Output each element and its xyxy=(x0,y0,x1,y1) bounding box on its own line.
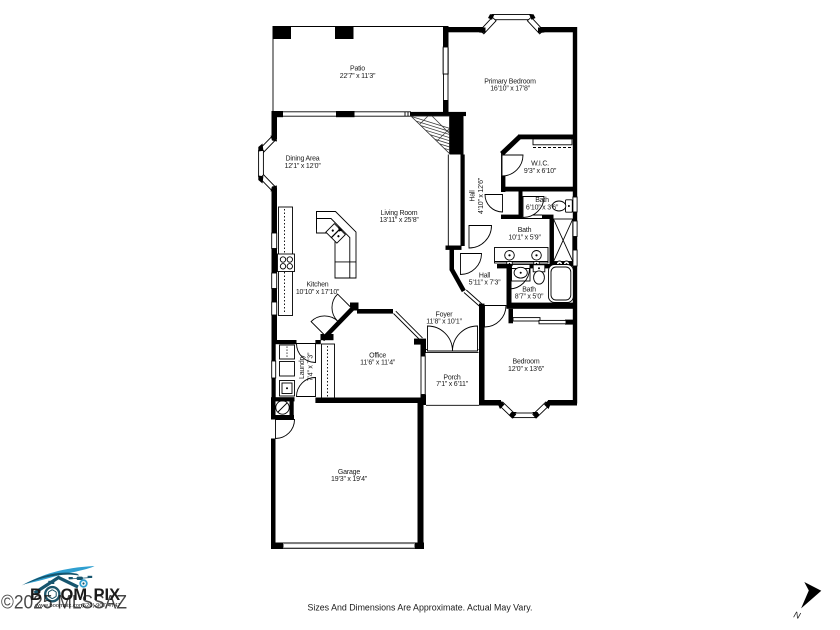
svg-text:12’1” x 12’0”: 12’1” x 12’0” xyxy=(285,163,322,170)
svg-text:Foyer: Foyer xyxy=(436,312,454,319)
svg-text:Dining Area: Dining Area xyxy=(286,156,320,163)
svg-text:Primary Bedroom: Primary Bedroom xyxy=(484,78,536,85)
svg-text:22’7” x 11’3”: 22’7” x 11’3” xyxy=(340,73,376,80)
svg-text:7’4” x 7’3”: 7’4” x 7’3” xyxy=(308,352,315,381)
svg-text:Sizes And Dimensions Are Appro: Sizes And Dimensions Are Approximate. Ac… xyxy=(308,603,533,613)
svg-text:10’1” x 5’9”: 10’1” x 5’9” xyxy=(508,234,541,241)
svg-text:5’11” x 7’3”: 5’11” x 7’3” xyxy=(469,279,502,286)
svg-text:Office: Office xyxy=(369,352,386,359)
svg-text:11’6” x 11’4”: 11’6” x 11’4” xyxy=(360,359,396,366)
svg-text:13’11” x 25’8”: 13’11” x 25’8” xyxy=(379,217,419,224)
svg-text:Bedroom: Bedroom xyxy=(512,359,539,366)
svg-text:Living Room: Living Room xyxy=(381,210,418,217)
svg-text:10’10” x 17’10”: 10’10” x 17’10” xyxy=(296,289,340,296)
svg-text:9’3” x 6’10”: 9’3” x 6’10” xyxy=(524,168,557,175)
svg-text:Bath: Bath xyxy=(535,197,549,204)
svg-text:Patio: Patio xyxy=(350,66,365,73)
svg-text:16’10” x 17’8”: 16’10” x 17’8” xyxy=(490,86,530,93)
svg-text:11’8” x 10’1”: 11’8” x 10’1” xyxy=(426,319,462,326)
svg-text:7’1” x 6’11”: 7’1” x 6’11” xyxy=(436,381,469,388)
svg-text:12’0” x 13’6”: 12’0” x 13’6” xyxy=(508,366,545,373)
svg-text:Laundry: Laundry xyxy=(299,354,306,379)
svg-text:6’10” x 3’6”: 6’10” x 3’6” xyxy=(526,204,559,211)
svg-text:19’3” x 19’4”: 19’3” x 19’4” xyxy=(331,476,368,483)
svg-text:W.I.C.: W.I.C. xyxy=(531,161,549,168)
svg-text:Bath: Bath xyxy=(518,227,532,234)
svg-text:©2025 MLSSAZ: ©2025 MLSSAZ xyxy=(1,593,127,614)
svg-text:Kitchen: Kitchen xyxy=(307,282,329,289)
svg-text:Hall: Hall xyxy=(479,272,491,279)
svg-text:4’10” x 12’6”: 4’10” x 12’6” xyxy=(478,177,485,214)
svg-text:Hall: Hall xyxy=(470,190,477,202)
svg-text:8’7” x 5’0”: 8’7” x 5’0” xyxy=(515,293,544,300)
